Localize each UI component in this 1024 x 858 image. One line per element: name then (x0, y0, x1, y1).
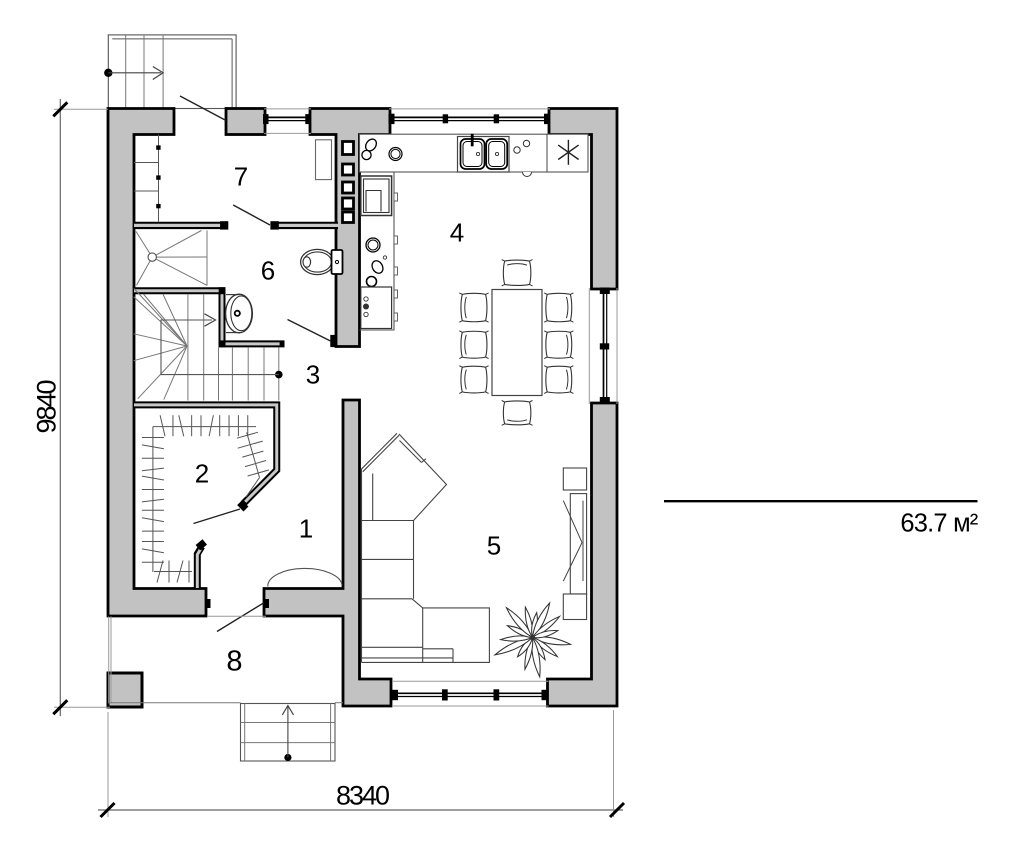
svg-text:8340: 8340 (336, 781, 389, 811)
svg-text:2: 2 (195, 458, 209, 488)
svg-text:9840: 9840 (32, 380, 62, 433)
svg-text:63.7 м²: 63.7 м² (900, 510, 977, 538)
svg-text:1: 1 (299, 513, 313, 543)
svg-text:7: 7 (234, 161, 248, 191)
svg-text:4: 4 (450, 217, 464, 247)
svg-text:8: 8 (226, 645, 242, 677)
svg-text:3: 3 (306, 359, 320, 389)
svg-text:6: 6 (261, 255, 275, 285)
svg-text:5: 5 (487, 530, 501, 560)
